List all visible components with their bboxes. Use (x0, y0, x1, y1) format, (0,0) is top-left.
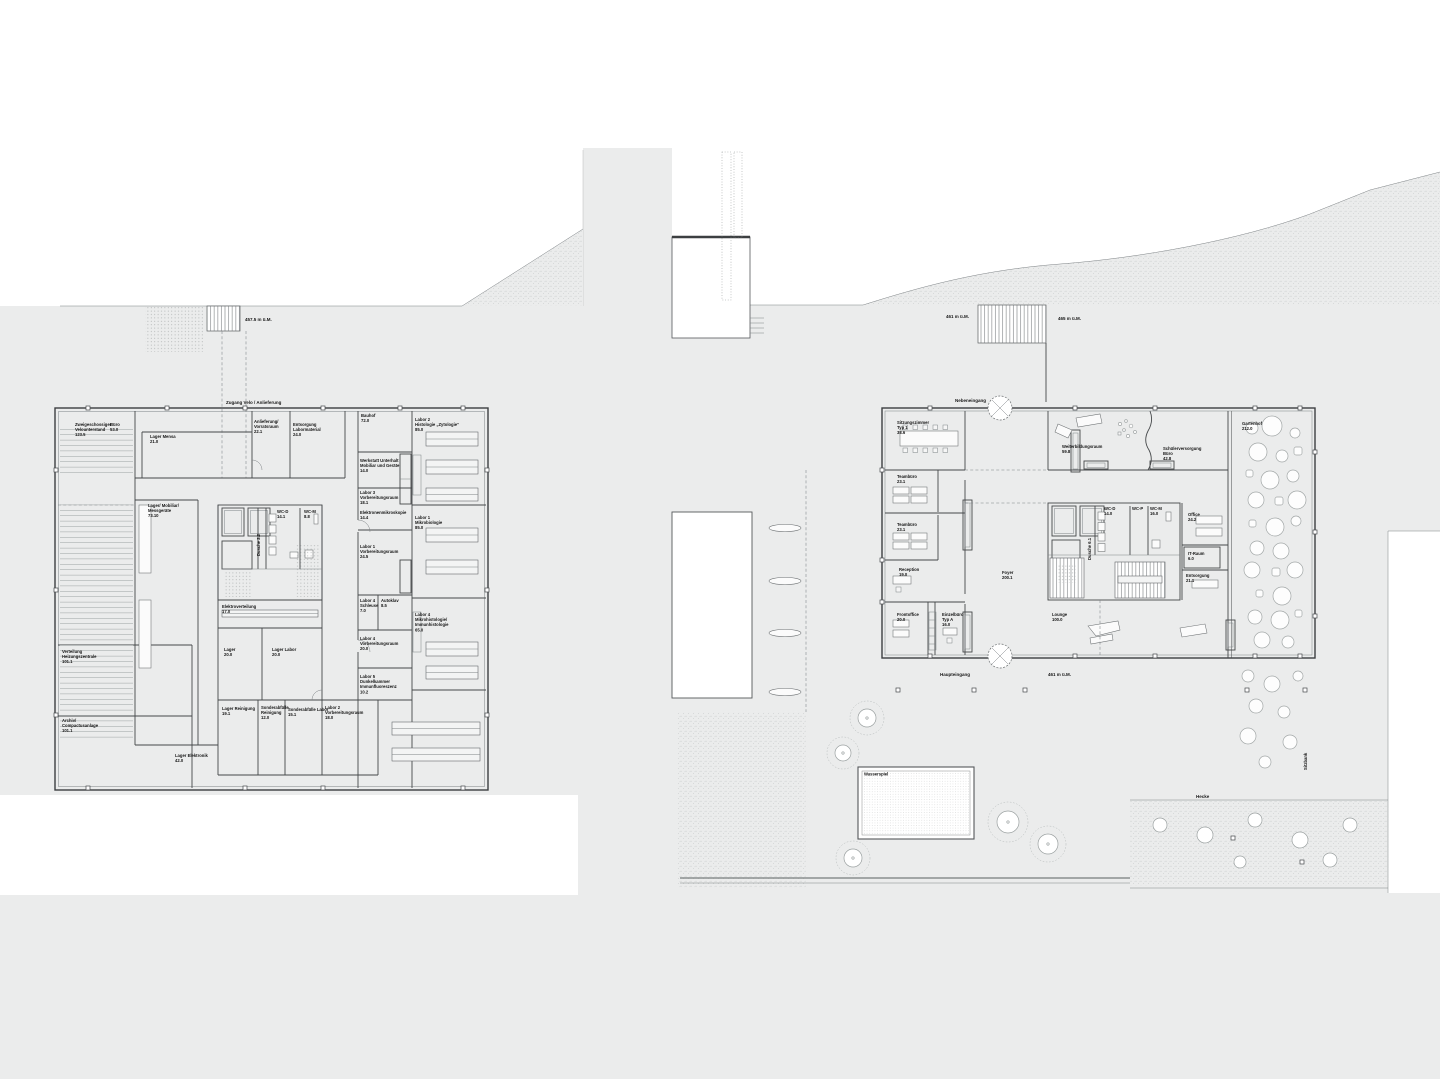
room-label: Anlieferung/Vorratsraum22.1 (254, 419, 279, 434)
room-label: Lager/ Mobiliar/Messgeräte73.10 (148, 503, 180, 518)
room-label: Labor 4Schleuse7.0 (360, 598, 379, 613)
room-label: Labor 2Histologie „Zytologie“85.0 (415, 417, 459, 432)
exterior-stair (207, 306, 240, 331)
room-label: Weiterbildungsraum59.8 (1062, 444, 1103, 454)
planters (769, 524, 801, 695)
elevation-label: 457.5 m ü.M. (245, 317, 272, 322)
lab-benches (392, 432, 480, 761)
door-thresholds (1084, 461, 1174, 469)
room-label: Labor 3Vorbereitungsraum18.1 (360, 490, 399, 505)
room-label: Werkstatt UnterhaltMobiliar und Geräte14… (360, 458, 400, 473)
hill-stair (978, 305, 1046, 402)
furniture (893, 414, 1207, 650)
main-entrance-label: Haupteingang (940, 672, 970, 677)
room-label: Dusche 6.1 (1087, 537, 1092, 560)
revolving-door (988, 396, 1012, 668)
room-label: EinzelbüroTyp A16.0 (942, 612, 964, 627)
room-label: Lager Mensa21.0 (150, 434, 176, 444)
room-label: Teambüro23.1 (897, 522, 917, 532)
room-label: Foyer200.1 (1002, 570, 1014, 580)
garden-area (678, 712, 806, 888)
access-label: Zugang Velo / Anlieferung (226, 400, 282, 405)
room-label: WC-D14.1 (277, 509, 288, 519)
room-label: Gartenhof212.0 (1242, 421, 1263, 431)
neighbour-building (672, 512, 752, 698)
room-label: Labor 5DunkelkammerImmunfluoreszenz10.2 (360, 674, 397, 694)
room-label: Labor 1Vorbereitungsraum24.5 (360, 544, 399, 559)
room-label: Dusche 2.2 (256, 533, 261, 556)
room-label: Sonderabfälle Labor15.1 (288, 707, 329, 717)
room-label: Elektronenmikroskopie14.4 (360, 510, 407, 520)
room-label: Lager Reinigung19.1 (222, 706, 255, 716)
exterior-steps (750, 318, 764, 333)
floor-plan-drawing: 457.5 m ü.M. Zugang Velo / Anlieferung (0, 0, 1440, 1079)
elevation-label: 461 m ü.M. (946, 314, 969, 319)
room-label: Reception19.0 (899, 567, 920, 577)
room-label: WC-P (1132, 506, 1143, 511)
room-label: Autoklav8.5 (381, 598, 399, 608)
elevation-label: 465 m ü.M. (1058, 316, 1081, 321)
drawing-sheet: { "colors": { "background": "#ebecec", "… (0, 0, 1440, 1079)
retaining-hatch (145, 306, 205, 352)
elevation-label: 461 m ü.M. (1048, 672, 1071, 677)
water-feature: Wasserspiel (858, 767, 974, 839)
room-label: Labor 4Vorbereitungsraum20.0 (360, 636, 399, 651)
room-label: IT-Raum6.0 (1188, 551, 1205, 561)
bike-racks (60, 500, 133, 742)
room-label: Bauhof72.0 (361, 413, 376, 423)
water-feature-label: Wasserspiel (864, 772, 888, 777)
room-label: Lounge100.0 (1052, 612, 1068, 622)
right-plan-building (880, 396, 1317, 768)
neighbour-building (672, 237, 750, 338)
hedge-label: Hecke (1196, 794, 1210, 799)
bike-racks (60, 426, 133, 474)
room-label: EntsorgungLabormaterial24.0 (293, 422, 321, 437)
hedge-area (1130, 801, 1388, 886)
room-label: Labor 4Mikrohistologie/Immunhistologie65… (415, 612, 449, 632)
room-label: SchülerversorgungBüro42.8 (1163, 446, 1202, 461)
bench-label: Sitzbank (1303, 752, 1308, 770)
room-label: WC-D14.0 (1104, 506, 1115, 516)
right-core (1048, 503, 1180, 600)
side-entrance-label: Nebeneingang (955, 398, 986, 403)
left-core (218, 505, 322, 617)
courtyard-plants (1240, 416, 1306, 768)
left-plan-building (54, 406, 489, 790)
room-label: Lager Labor20.0 (272, 647, 297, 657)
room-label: Teambüro23.1 (897, 474, 917, 484)
room-label: WC-M16.0 (1150, 506, 1162, 516)
room-label: Lager20.0 (224, 647, 236, 657)
